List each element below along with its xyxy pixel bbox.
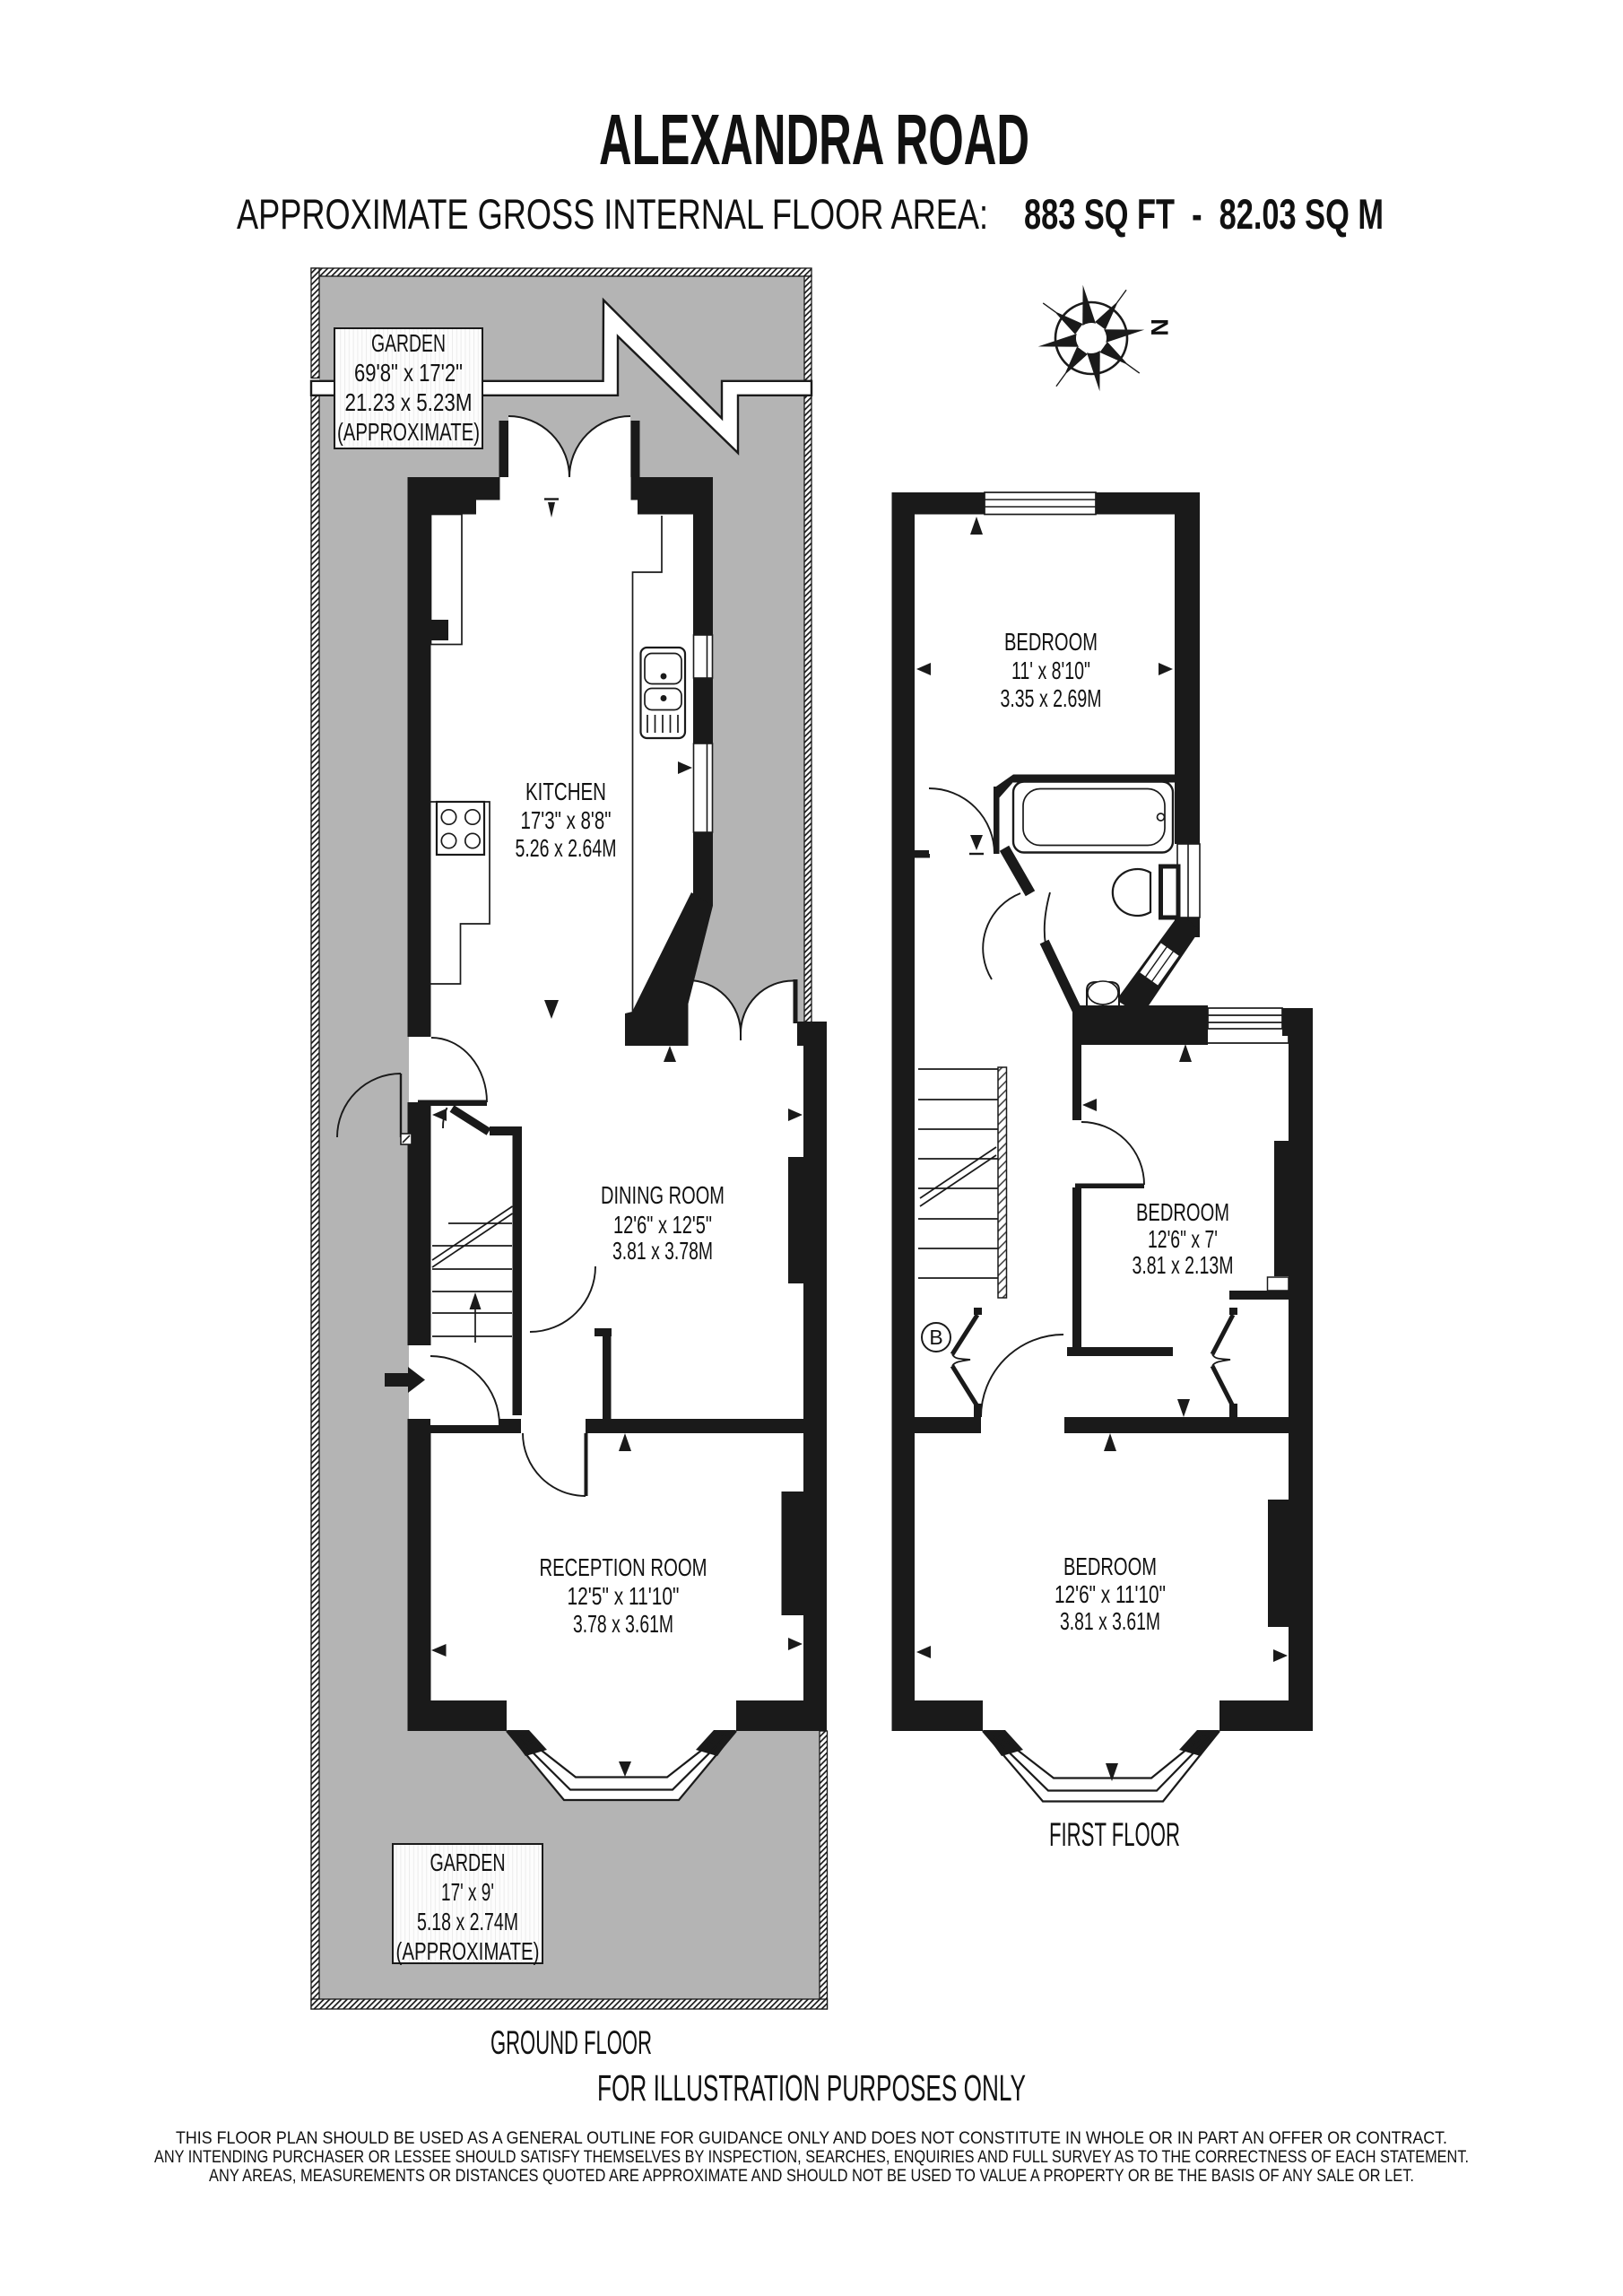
- svg-text:APPROXIMATE GROSS INTERNAL FLO: APPROXIMATE GROSS INTERNAL FLOOR AREA:: [237, 190, 988, 238]
- svg-text:5.26 x 2.64M: 5.26 x 2.64M: [516, 834, 617, 862]
- svg-text:12'5" x 11'10": 12'5" x 11'10": [568, 1582, 680, 1610]
- svg-text:KITCHEN: KITCHEN: [525, 778, 606, 805]
- svg-text:THIS FLOOR PLAN SHOULD BE USED: THIS FLOOR PLAN SHOULD BE USED AS A GENE…: [176, 2128, 1447, 2148]
- svg-text:FIRST FLOOR: FIRST FLOOR: [1049, 1816, 1180, 1853]
- svg-text:3.81 x 3.78M: 3.81 x 3.78M: [612, 1237, 713, 1265]
- svg-text:11' x 8'10": 11' x 8'10": [1011, 657, 1090, 684]
- svg-text:12'6" x 11'10": 12'6" x 11'10": [1055, 1580, 1166, 1608]
- svg-text:GROUND FLOOR: GROUND FLOOR: [490, 2024, 652, 2061]
- svg-text:3.81 x 3.61M: 3.81 x 3.61M: [1060, 1607, 1160, 1635]
- svg-text:B: B: [929, 1326, 942, 1349]
- svg-text:69'8" x 17'2": 69'8" x 17'2": [354, 359, 463, 387]
- svg-text:ALEXANDRA ROAD: ALEXANDRA ROAD: [599, 100, 1029, 179]
- svg-text:(APPROXIMATE): (APPROXIMATE): [396, 1937, 540, 1965]
- svg-text:BEDROOM: BEDROOM: [1004, 628, 1098, 656]
- svg-text:DINING ROOM: DINING ROOM: [601, 1181, 725, 1209]
- svg-text:12'6" x 7': 12'6" x 7': [1148, 1225, 1218, 1253]
- svg-text:N: N: [1146, 318, 1173, 336]
- svg-text:17' x 9': 17' x 9': [441, 1878, 494, 1906]
- svg-text:ANY INTENDING PURCHASER OR LES: ANY INTENDING PURCHASER OR LESSEE SHOULD…: [154, 2147, 1469, 2167]
- svg-text:17'3" x 8'8": 17'3" x 8'8": [521, 806, 612, 834]
- svg-text:FOR ILLUSTRATION PURPOSES ONLY: FOR ILLUSTRATION PURPOSES ONLY: [597, 2067, 1026, 2109]
- svg-text:21.23 x 5.23M: 21.23 x 5.23M: [345, 388, 473, 416]
- svg-text:883 SQ FT - 82.03 SQ M: 883 SQ FT - 82.03 SQ M: [1024, 190, 1384, 238]
- svg-text:12'6" x 12'5": 12'6" x 12'5": [613, 1211, 712, 1239]
- svg-text:GARDEN: GARDEN: [430, 1848, 506, 1876]
- svg-text:(APPROXIMATE): (APPROXIMATE): [337, 418, 480, 446]
- svg-text:ANY AREAS, MEASUREMENTS OR DIS: ANY AREAS, MEASUREMENTS OR DISTANCES QUO…: [209, 2166, 1414, 2186]
- svg-text:BEDROOM: BEDROOM: [1063, 1552, 1157, 1580]
- svg-text:RECEPTION ROOM: RECEPTION ROOM: [540, 1553, 707, 1581]
- svg-text:3.78 x 3.61M: 3.78 x 3.61M: [573, 1610, 673, 1638]
- svg-text:GARDEN: GARDEN: [371, 329, 446, 357]
- svg-text:BEDROOM: BEDROOM: [1136, 1198, 1229, 1226]
- svg-text:3.81 x 2.13M: 3.81 x 2.13M: [1133, 1251, 1234, 1279]
- svg-text:5.18 x 2.74M: 5.18 x 2.74M: [417, 1908, 518, 1935]
- svg-text:3.35 x 2.69M: 3.35 x 2.69M: [1001, 684, 1102, 712]
